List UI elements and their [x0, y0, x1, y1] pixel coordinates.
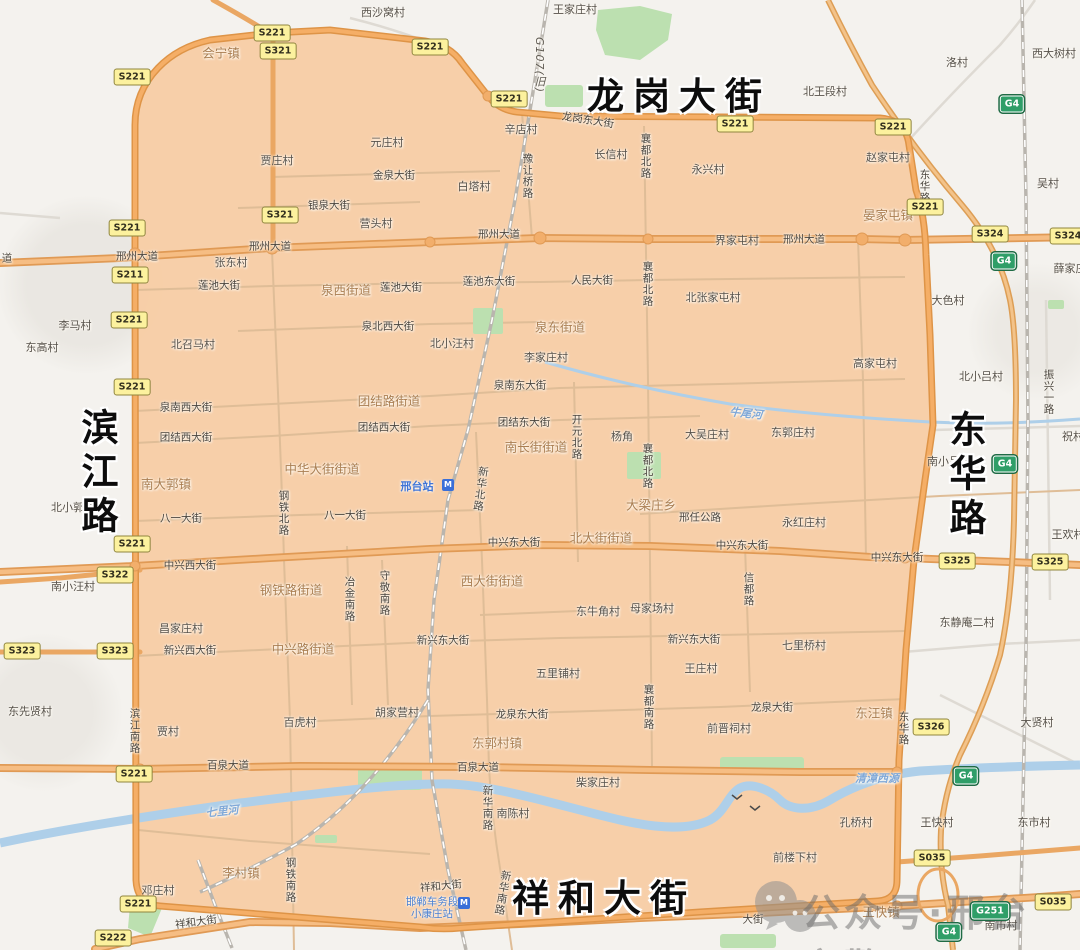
provincial-road-shield: S221	[412, 39, 449, 56]
provincial-road-shield: S322	[97, 567, 134, 584]
provincial-road-shield: S324	[1050, 228, 1080, 245]
provincial-road-shield: S221	[109, 220, 146, 237]
provincial-road-shield: S221	[114, 379, 151, 396]
provincial-road-shield: S035	[914, 850, 951, 867]
provincial-road-shield: S221	[907, 199, 944, 216]
national-road-shield: G4	[937, 924, 961, 941]
provincial-road-shield: S221	[114, 69, 151, 86]
provincial-road-shield: S325	[1032, 554, 1069, 571]
provincial-road-shield: S221	[491, 91, 528, 108]
shield-layer: S221S321S221S221S221S221S221S221S321S221…	[0, 0, 1080, 950]
provincial-road-shield: S221	[120, 896, 157, 913]
provincial-road-shield: S211	[112, 267, 149, 284]
national-road-shield: G4	[1000, 96, 1024, 113]
national-road-shield: G251	[971, 903, 1009, 920]
national-road-shield: G4	[954, 768, 978, 785]
provincial-road-shield: S221	[717, 116, 754, 133]
provincial-road-shield: S035	[1035, 894, 1072, 911]
map-canvas[interactable]: 西沙窝村王家庄村北王段村洛村西大树村吴村贾庄村元庄村辛店村白塔村长信村永兴村赵家…	[0, 0, 1080, 950]
provincial-road-shield: S321	[262, 207, 299, 224]
provincial-road-shield: S221	[875, 119, 912, 136]
national-road-shield: G4	[993, 456, 1017, 473]
provincial-road-shield: S323	[4, 643, 41, 660]
provincial-road-shield: S221	[116, 766, 153, 783]
provincial-road-shield: S324	[972, 226, 1009, 243]
national-road-shield: G4	[992, 253, 1016, 270]
provincial-road-shield: S221	[111, 312, 148, 329]
provincial-road-shield: S321	[260, 43, 297, 60]
provincial-road-shield: S323	[97, 643, 134, 660]
provincial-road-shield: S221	[114, 536, 151, 553]
provincial-road-shield: S326	[913, 719, 950, 736]
provincial-road-shield: S325	[939, 553, 976, 570]
provincial-road-shield: S222	[95, 930, 132, 947]
provincial-road-shield: S221	[254, 25, 291, 42]
